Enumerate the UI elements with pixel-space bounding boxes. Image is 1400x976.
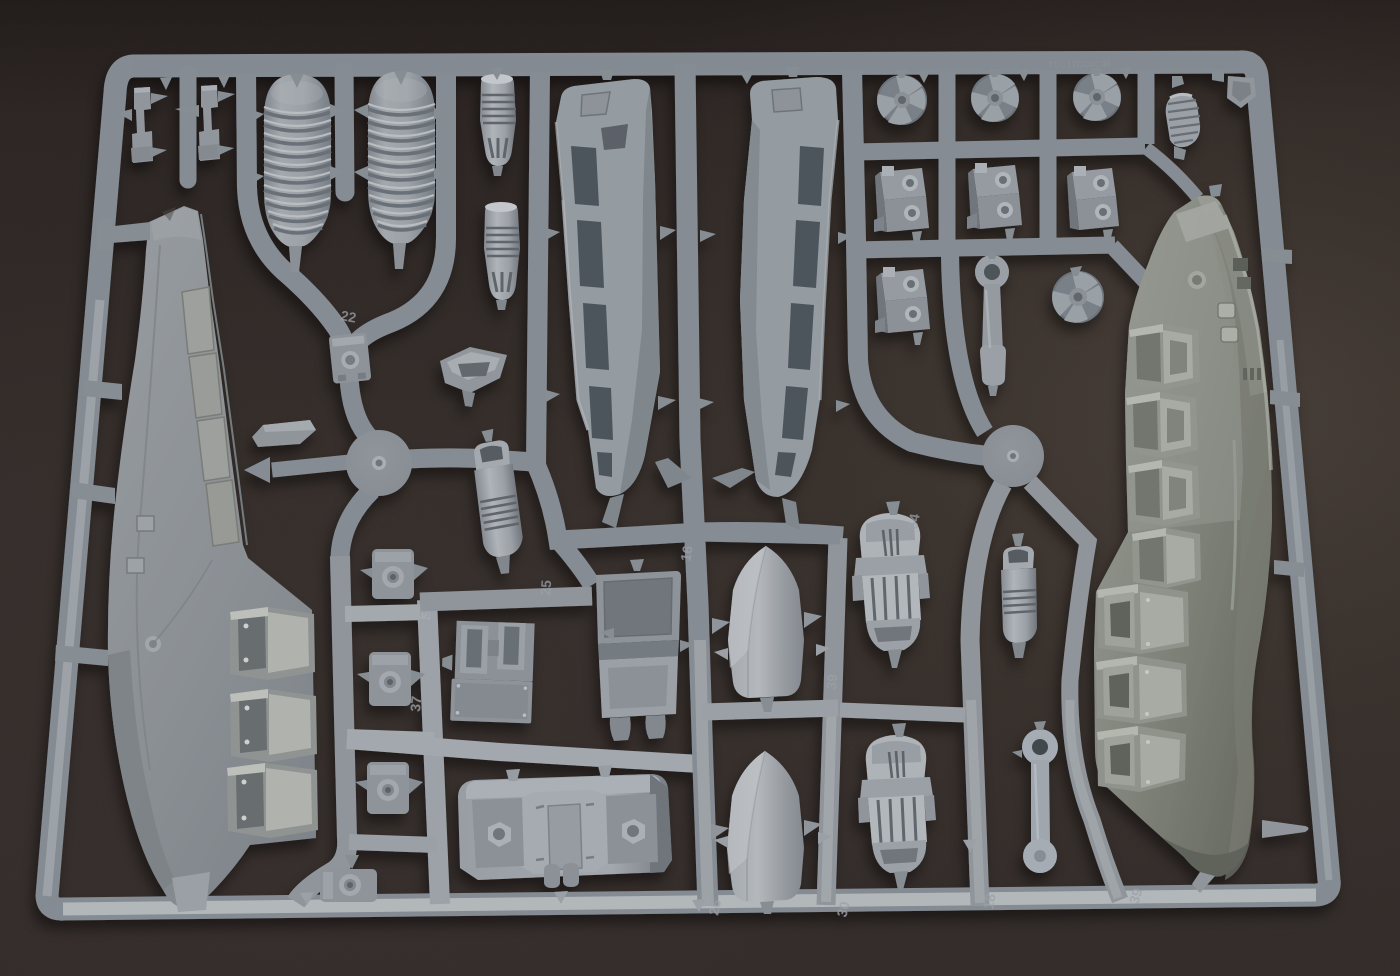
svg-text:37: 37 — [407, 695, 424, 712]
svg-text:TCC17CC4C46: TCC17CC4C46 — [1048, 59, 1111, 70]
svg-text:16: 16 — [677, 544, 695, 562]
svg-text:64: 64 — [904, 512, 922, 530]
svg-text:43: 43 — [415, 609, 432, 626]
svg-text:25: 25 — [537, 579, 554, 596]
svg-text:39: 39 — [823, 673, 840, 690]
svg-text:22: 22 — [339, 307, 357, 325]
svg-text:18: 18 — [980, 892, 998, 910]
